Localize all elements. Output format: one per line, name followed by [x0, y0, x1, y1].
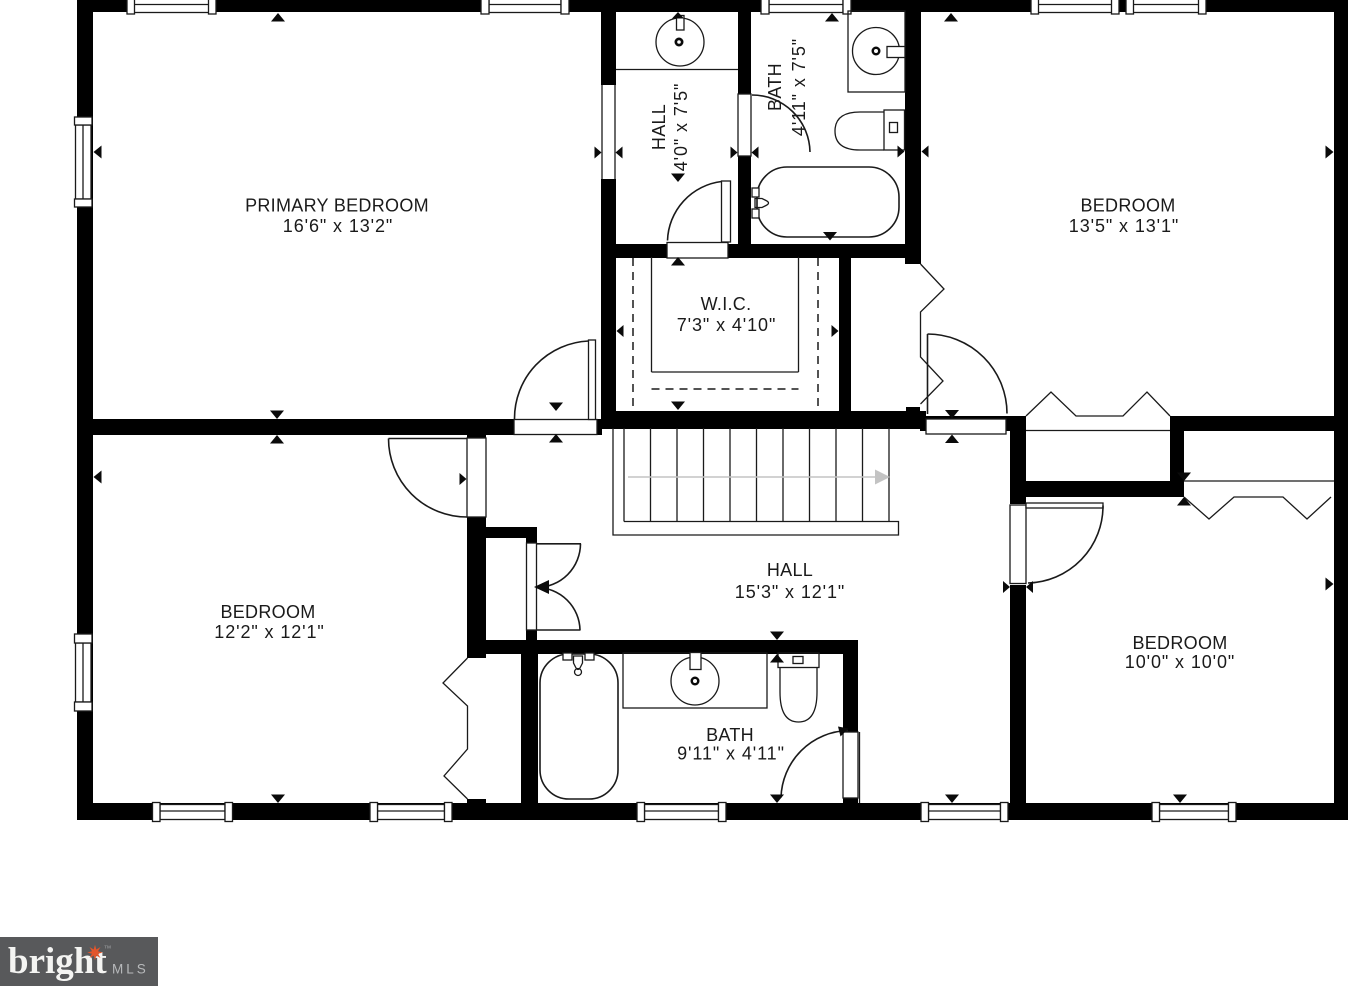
svg-text:10'0" x 10'0": 10'0" x 10'0": [1125, 652, 1235, 672]
svg-text:13'5" x 13'1": 13'5" x 13'1": [1069, 216, 1179, 236]
svg-text:MLS: MLS: [112, 962, 149, 977]
svg-text:15'3" x 12'1": 15'3" x 12'1": [735, 582, 845, 602]
svg-text:HALL: HALL: [767, 560, 813, 580]
svg-text:BEDROOM: BEDROOM: [1080, 196, 1175, 216]
svg-text:4'0" x 7'5": 4'0" x 7'5": [671, 83, 691, 172]
svg-text:BEDROOM: BEDROOM: [220, 602, 315, 622]
svg-text:7'3" x 4'10": 7'3" x 4'10": [677, 315, 777, 335]
svg-text:W.I.C.: W.I.C.: [701, 294, 752, 314]
svg-text:16'6" x 13'2": 16'6" x 13'2": [283, 216, 393, 236]
svg-text:BEDROOM: BEDROOM: [1132, 633, 1227, 653]
svg-text:12'2" x 12'1": 12'2" x 12'1": [214, 622, 324, 642]
svg-text:PRIMARY BEDROOM: PRIMARY BEDROOM: [245, 196, 429, 216]
svg-text:9'11" x 4'11": 9'11" x 4'11": [677, 744, 785, 764]
svg-text:BATH: BATH: [706, 725, 754, 745]
svg-text:HALL: HALL: [649, 104, 669, 150]
svg-text:BATH: BATH: [765, 63, 785, 111]
svg-text:™: ™: [104, 944, 112, 953]
svg-text:4'11" x 7'5": 4'11" x 7'5": [789, 38, 809, 136]
svg-text:bright: bright: [8, 941, 107, 982]
